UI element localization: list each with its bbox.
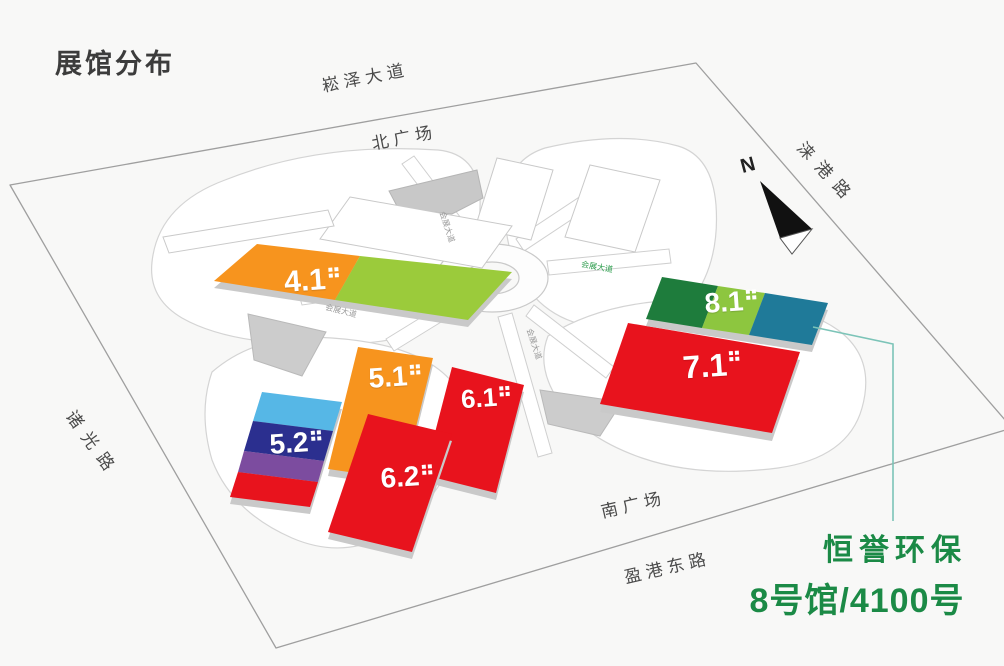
hall-grid-icon: [328, 267, 340, 279]
hall-label-4-1: 4.1: [283, 262, 341, 300]
hall-grid-icon: [729, 350, 741, 362]
hall-number: 4.1: [283, 263, 327, 300]
exhibitor-name: 恒誉环保: [766, 528, 1004, 575]
exhibitor-annotation: 恒誉环保 8号馆/4100号: [728, 528, 986, 627]
exhibitor-booth: 8号馆/4100号: [728, 575, 986, 628]
hall-label-5-2: 5.2: [268, 425, 323, 461]
page-title: 展馆分布: [55, 42, 175, 81]
hall-label-7-1: 7.1: [682, 346, 743, 387]
venue-map: 展馆分布 崧泽大道 北广场 涞港路 诸光路 南广场 盈港东路 会展大道 会展大道…: [0, 0, 1004, 666]
hall-label-8-1: 8.1: [703, 284, 758, 320]
hall-number: 5.1: [367, 360, 408, 395]
hall-number: 8.1: [703, 285, 744, 320]
hall-number: 5.2: [268, 426, 309, 461]
hall-label-5-1: 5.1: [367, 359, 422, 395]
compass-arrow-dark: [760, 181, 812, 238]
hall-number: 6.2: [379, 460, 420, 495]
hall-number: 7.1: [682, 346, 729, 386]
hall-grid-icon: [410, 364, 422, 376]
hall-label-6-1: 6.1: [460, 381, 512, 415]
hall-grid-icon: [499, 386, 511, 398]
hall-grid-icon: [422, 464, 434, 476]
hall-label-6-2: 6.2: [379, 459, 434, 495]
hall-grid-icon: [311, 430, 323, 442]
hall-number: 6.1: [460, 382, 498, 415]
hall-grid-icon: [746, 289, 758, 301]
